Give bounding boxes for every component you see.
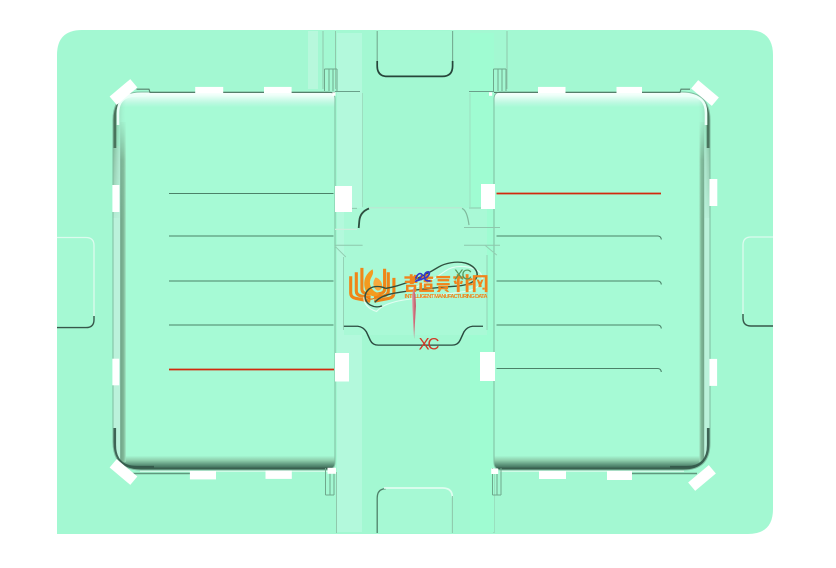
svg-text:INTELLIGENT MANUFACTURING DATA: INTELLIGENT MANUFACTURING DATA <box>405 294 488 300</box>
svg-text:XC: XC <box>419 335 440 353</box>
svg-text:XC: XC <box>454 268 472 284</box>
